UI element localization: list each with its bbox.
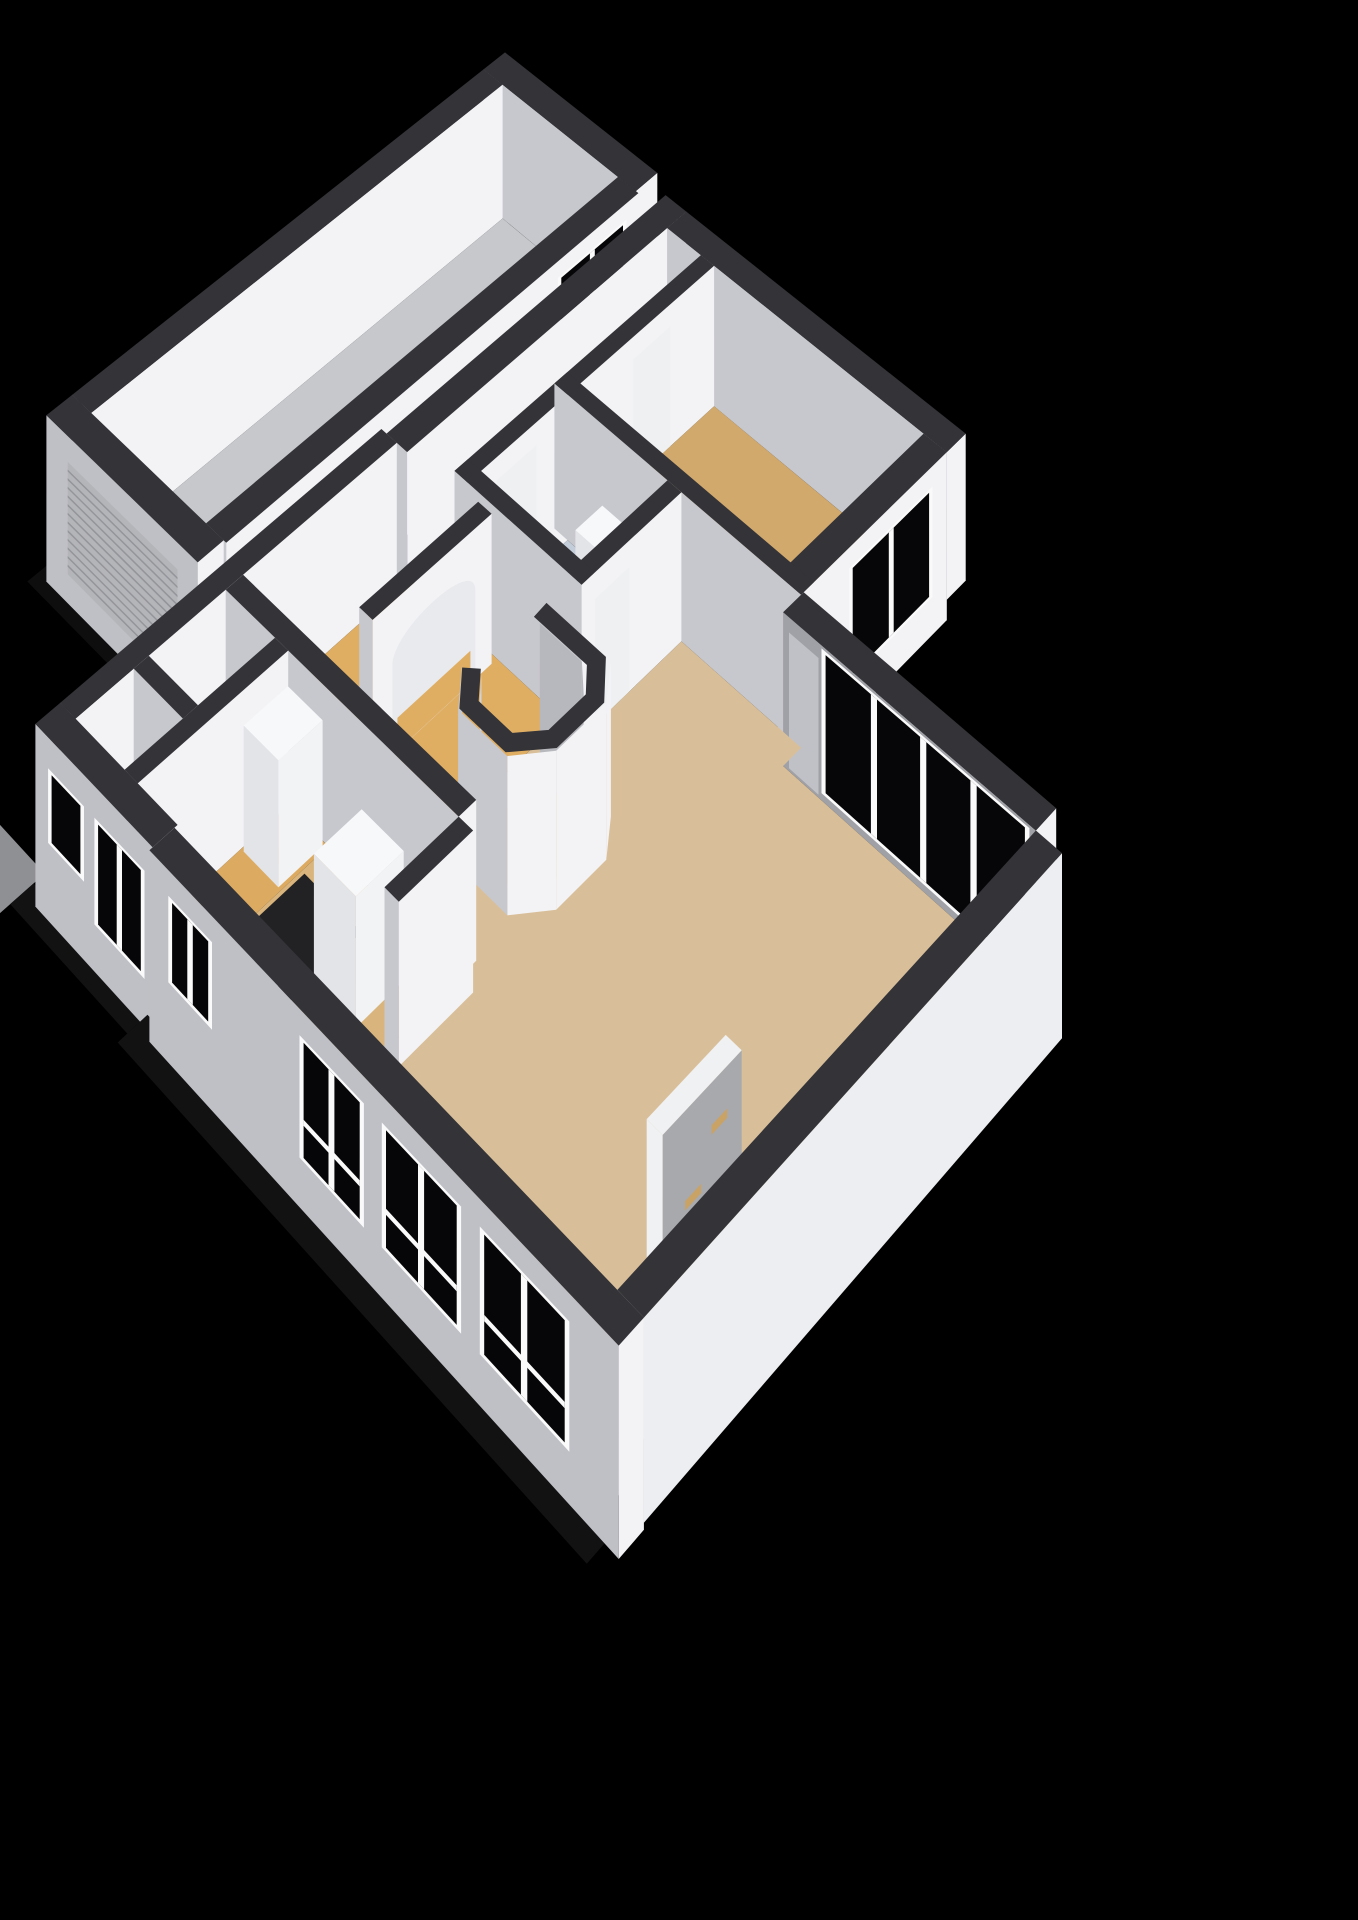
floorplan-3d-render — [0, 0, 1358, 1920]
living-window-band-mullion — [920, 737, 926, 883]
floorplan-3d-stage — [0, 0, 1358, 1920]
living-window-south-2-mullion — [418, 1164, 424, 1289]
kitchen-living-wall-face — [385, 887, 399, 1066]
living-window-band-mullion — [871, 694, 877, 839]
bedroom-window-mullion — [889, 528, 894, 638]
utility-window-right-mullion — [117, 844, 122, 950]
terrace-door — [789, 633, 819, 795]
living-window-south-3-mullion — [521, 1274, 527, 1402]
living-window-south-1-mullion — [329, 1069, 335, 1191]
kitchen-window-mullion — [187, 919, 193, 1005]
living-south-wall-face — [619, 1318, 644, 1559]
stairwell-outer-wall-face — [507, 751, 556, 916]
bedroom-north-wall-face — [947, 434, 966, 600]
